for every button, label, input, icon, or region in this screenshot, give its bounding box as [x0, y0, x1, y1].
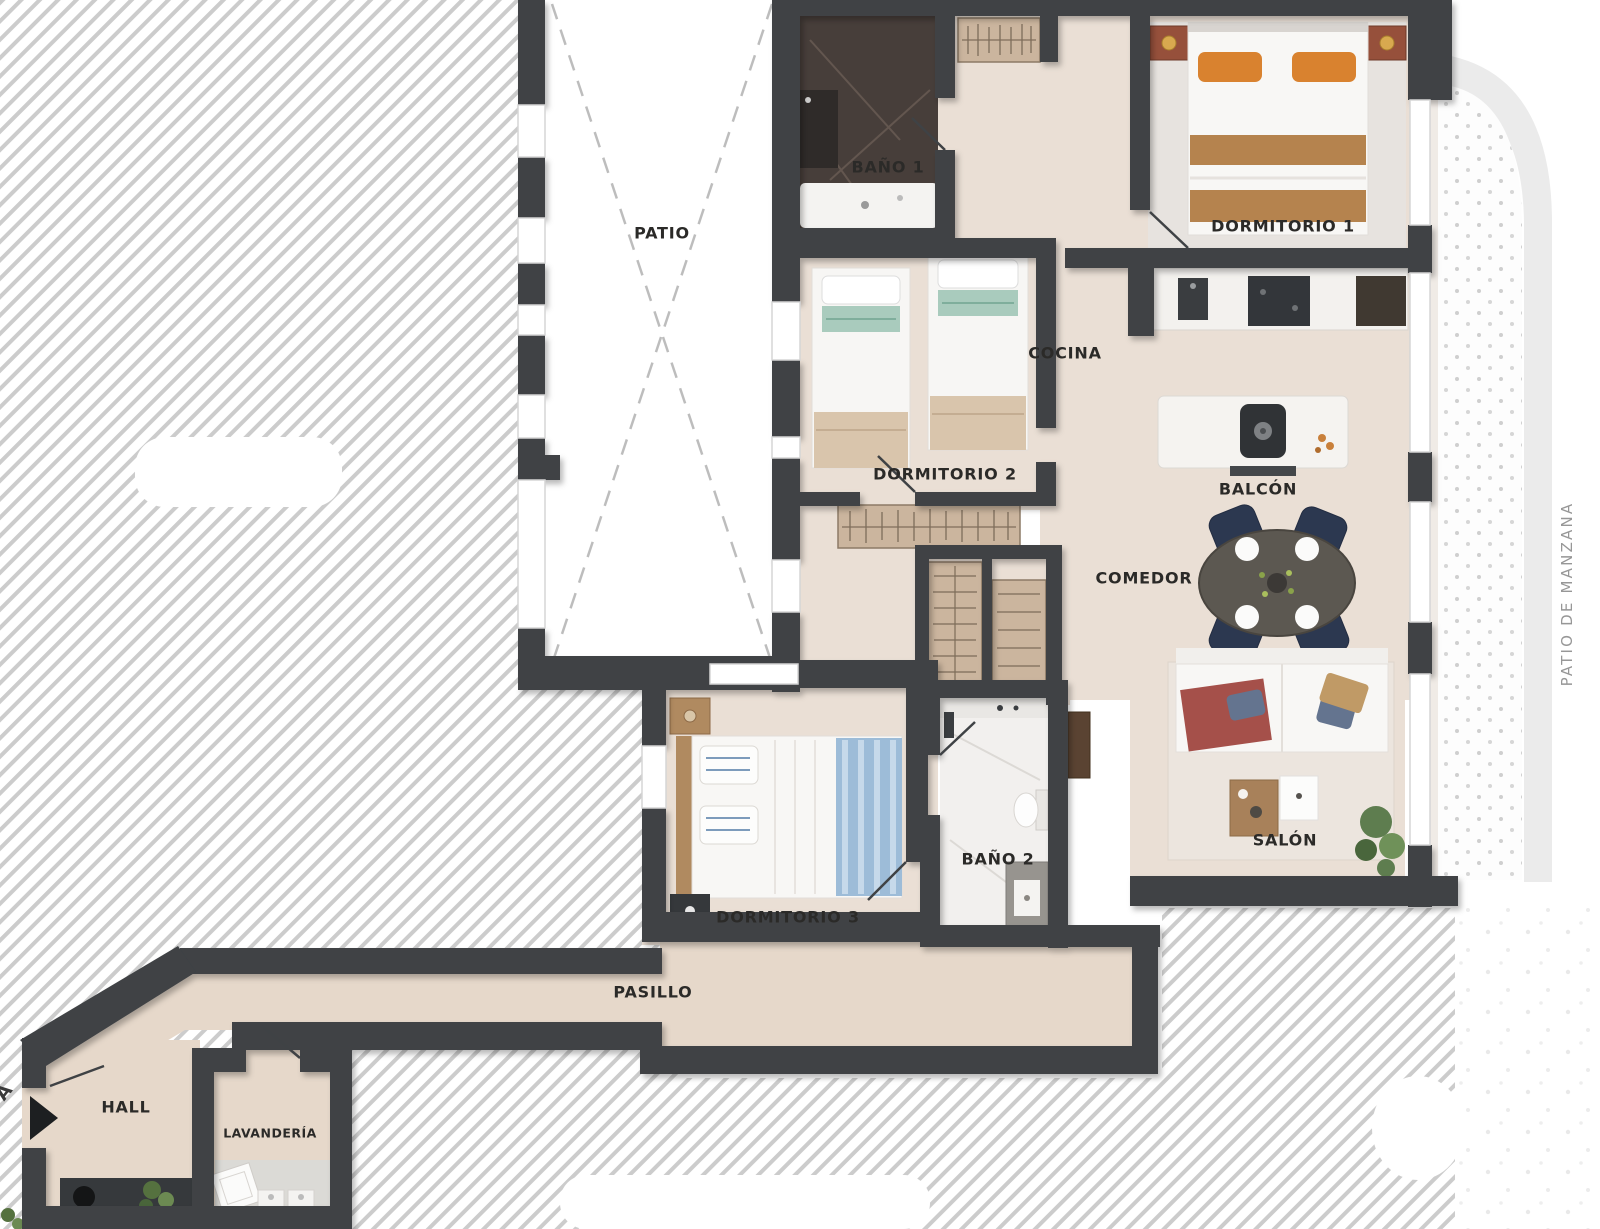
window — [1410, 100, 1430, 225]
window — [1410, 674, 1430, 845]
window — [772, 302, 800, 360]
window — [518, 395, 545, 438]
speckled-area-right — [1458, 895, 1600, 1229]
bathtub — [800, 183, 938, 228]
patio-area — [518, 0, 788, 690]
bathroom2-interior — [940, 698, 1048, 927]
cooktop — [1248, 276, 1310, 326]
window — [1410, 502, 1430, 622]
living-room-furniture — [1168, 648, 1405, 877]
window — [772, 560, 800, 612]
bed-headboard — [676, 736, 692, 898]
pillow — [700, 806, 758, 844]
pillow — [1198, 52, 1262, 82]
window — [518, 305, 545, 335]
window — [710, 664, 798, 684]
terrace-area — [1416, 52, 1552, 882]
tall-cabinet — [1356, 276, 1406, 326]
wardrobe-entry — [958, 18, 1040, 62]
window — [518, 480, 545, 628]
pillow — [1292, 52, 1356, 82]
toilet — [1014, 793, 1038, 827]
twin-bed — [928, 252, 1028, 450]
bowl — [73, 1186, 95, 1208]
bedroom1-furniture — [1148, 22, 1406, 250]
window — [518, 218, 545, 263]
window — [642, 746, 666, 808]
white-blob-bottom — [560, 1175, 930, 1229]
white-blob-bottom-right — [1372, 1076, 1464, 1180]
sofa-back — [1176, 648, 1388, 664]
floor-plan-drawing — [0, 0, 1600, 1229]
floor-plan: PATIO BAÑO 1 DORMITORIO 1 COCINA DORMITO… — [0, 0, 1600, 1229]
window — [518, 105, 545, 157]
white-blob-left — [135, 437, 342, 507]
window — [1410, 273, 1430, 452]
window — [772, 437, 800, 458]
vanity — [940, 698, 1048, 718]
terrace-floor-dotted — [1437, 84, 1522, 880]
pillow — [700, 746, 758, 784]
twin-bed — [812, 268, 910, 468]
cabinet — [1068, 712, 1090, 778]
